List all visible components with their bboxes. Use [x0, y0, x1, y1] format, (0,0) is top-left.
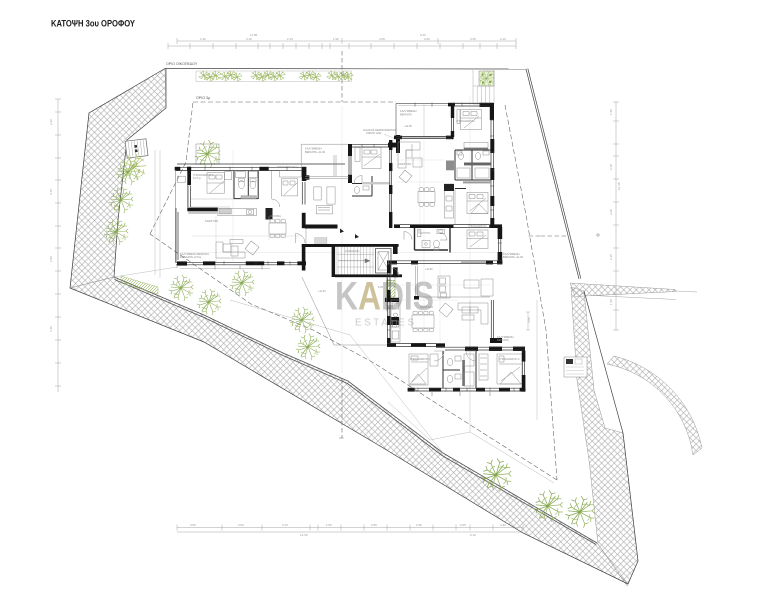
svg-text:2.35: 2.35: [609, 254, 613, 260]
svg-text:3.15: 3.15: [49, 189, 53, 195]
svg-text:3.10: 3.10: [282, 523, 288, 527]
svg-text:ΚΑΘΙΣΤΙΚΟ: ΚΑΘΙΣΤΙΚΟ: [398, 163, 411, 166]
svg-text:4.30: 4.30: [500, 523, 506, 527]
svg-text:2.95: 2.95: [371, 523, 377, 527]
svg-text:ΧΩΡΟΣ ΗΛΘ: ΧΩΡΟΣ ΗΛΘ: [366, 131, 381, 135]
svg-text:ΥΠΝΟΔΩΜΑΤΙΟ 2: ΥΠΝΟΔΩΜΑΤΙΟ 2: [277, 166, 298, 169]
svg-text:1.40: 1.40: [200, 37, 206, 41]
svg-text:3.40: 3.40: [49, 326, 53, 332]
svg-text:4.05: 4.05: [527, 317, 531, 323]
svg-text:2.30: 2.30: [609, 164, 613, 170]
svg-text:ΥΠΝΟΔΩΜΑΤΙΟ 1: ΥΠΝΟΔΩΜΑΤΙΟ 1: [410, 358, 431, 361]
svg-text:2.10: 2.10: [500, 37, 506, 41]
svg-text:ΕΜΒΑΔΟΝ 12.5τμ: ΕΜΒΑΔΟΝ 12.5τμ: [180, 255, 202, 259]
svg-text:12.5 τμ: 12.5 τμ: [193, 177, 202, 180]
svg-text:4.05: 4.05: [379, 37, 385, 41]
svg-text:KADIS: KADIS: [335, 275, 434, 319]
svg-text:ΥΠΝΟΔΩΜΑΤΙΟ: ΥΠΝΟΔΩΜΑΤΙΟ: [456, 120, 474, 123]
svg-text:10.45: 10.45: [617, 182, 621, 190]
svg-text:ΒΕΡΑΝΤΑ +11.60: ΒΕΡΑΝΤΑ +11.60: [305, 150, 326, 154]
svg-text:9.20: 9.20: [420, 33, 426, 37]
svg-text:ΒΕΡΑΝΤΑ: ΒΕΡΑΝΤΑ: [400, 113, 412, 117]
svg-text:1.95: 1.95: [609, 109, 613, 115]
svg-text:+11.60: +11.60: [425, 268, 433, 271]
svg-text:2.60: 2.60: [238, 523, 244, 527]
svg-text:3.25: 3.25: [470, 37, 476, 41]
svg-text:2.80: 2.80: [49, 256, 53, 262]
svg-text:ΥΠΝΟΔΩΜΑΤΙΟ 2: ΥΠΝΟΔΩΜΑΤΙΟ 2: [499, 358, 520, 361]
svg-text:2.25: 2.25: [609, 209, 613, 215]
svg-text:14.30: 14.30: [300, 533, 308, 537]
svg-text:2.05: 2.05: [460, 523, 466, 527]
svg-text:1.90: 1.90: [333, 37, 339, 41]
svg-text:ΚΑΛΥΜΜΕΝΗ: ΚΑΛΥΜΜΕΝΗ: [400, 109, 417, 113]
svg-text:ΚΑΤΟΨΗ 3ου ΟΡΟΦΟΥ: ΚΑΤΟΨΗ 3ου ΟΡΟΦΟΥ: [51, 19, 135, 29]
svg-text:1.60: 1.60: [609, 299, 613, 305]
svg-text:ΟΡΙΟ ΟΙΚΟΠΕΔΟΥ: ΟΡΙΟ ΟΙΚΟΠΕΔΟΥ: [166, 62, 198, 66]
svg-text:ΚΟΥΖΙΝΑ: ΚΟΥΖΙΝΑ: [270, 215, 281, 218]
svg-text:3.10: 3.10: [246, 37, 252, 41]
svg-text:ΥΠΝΟΔΩΜΑΤΙΟ: ΥΠΝΟΔΩΜΑΤΙΟ: [468, 225, 486, 228]
svg-text:ΚΑΘΙΣΤΙΚΟ: ΚΑΘΙΣΤΙΚΟ: [205, 220, 218, 223]
svg-text:1.50: 1.50: [326, 523, 332, 527]
svg-text:ΚΛΙΜΑΚ/ΣΙΟ: ΚΛΙΜΑΚ/ΣΙΟ: [345, 250, 359, 253]
svg-text:ΛΟΥΤΡΟ: ΛΟΥΤΡΟ: [420, 232, 430, 235]
svg-text:2.15: 2.15: [287, 37, 293, 41]
svg-text:1.90: 1.90: [416, 523, 422, 527]
svg-text:+11.60: +11.60: [318, 290, 326, 293]
svg-text:2.60: 2.60: [424, 37, 430, 41]
svg-text:8.25: 8.25: [378, 286, 383, 289]
svg-text:2.20: 2.20: [49, 119, 53, 125]
svg-text:ΚΑΘΙΣΤΙΚΟ: ΚΑΘΙΣΤΙΚΟ: [420, 306, 433, 309]
svg-text:ΒΕΡΑΝΤΑ +11.60: ΒΕΡΑΝΤΑ +11.60: [503, 255, 524, 259]
svg-text:+11.60: +11.60: [404, 124, 412, 128]
svg-text:ΟΡΙΟ 3μ: ΟΡΙΟ 3μ: [196, 96, 210, 100]
svg-text:9.10: 9.10: [470, 533, 476, 537]
svg-text:3.05: 3.05: [190, 523, 196, 527]
svg-text:ΒΕΡΑΝΤΑ: ΒΕΡΑΝΤΑ: [497, 338, 509, 342]
svg-text:E S T A T E S: E S T A T E S: [355, 318, 414, 329]
svg-text:11.85: 11.85: [250, 33, 258, 37]
